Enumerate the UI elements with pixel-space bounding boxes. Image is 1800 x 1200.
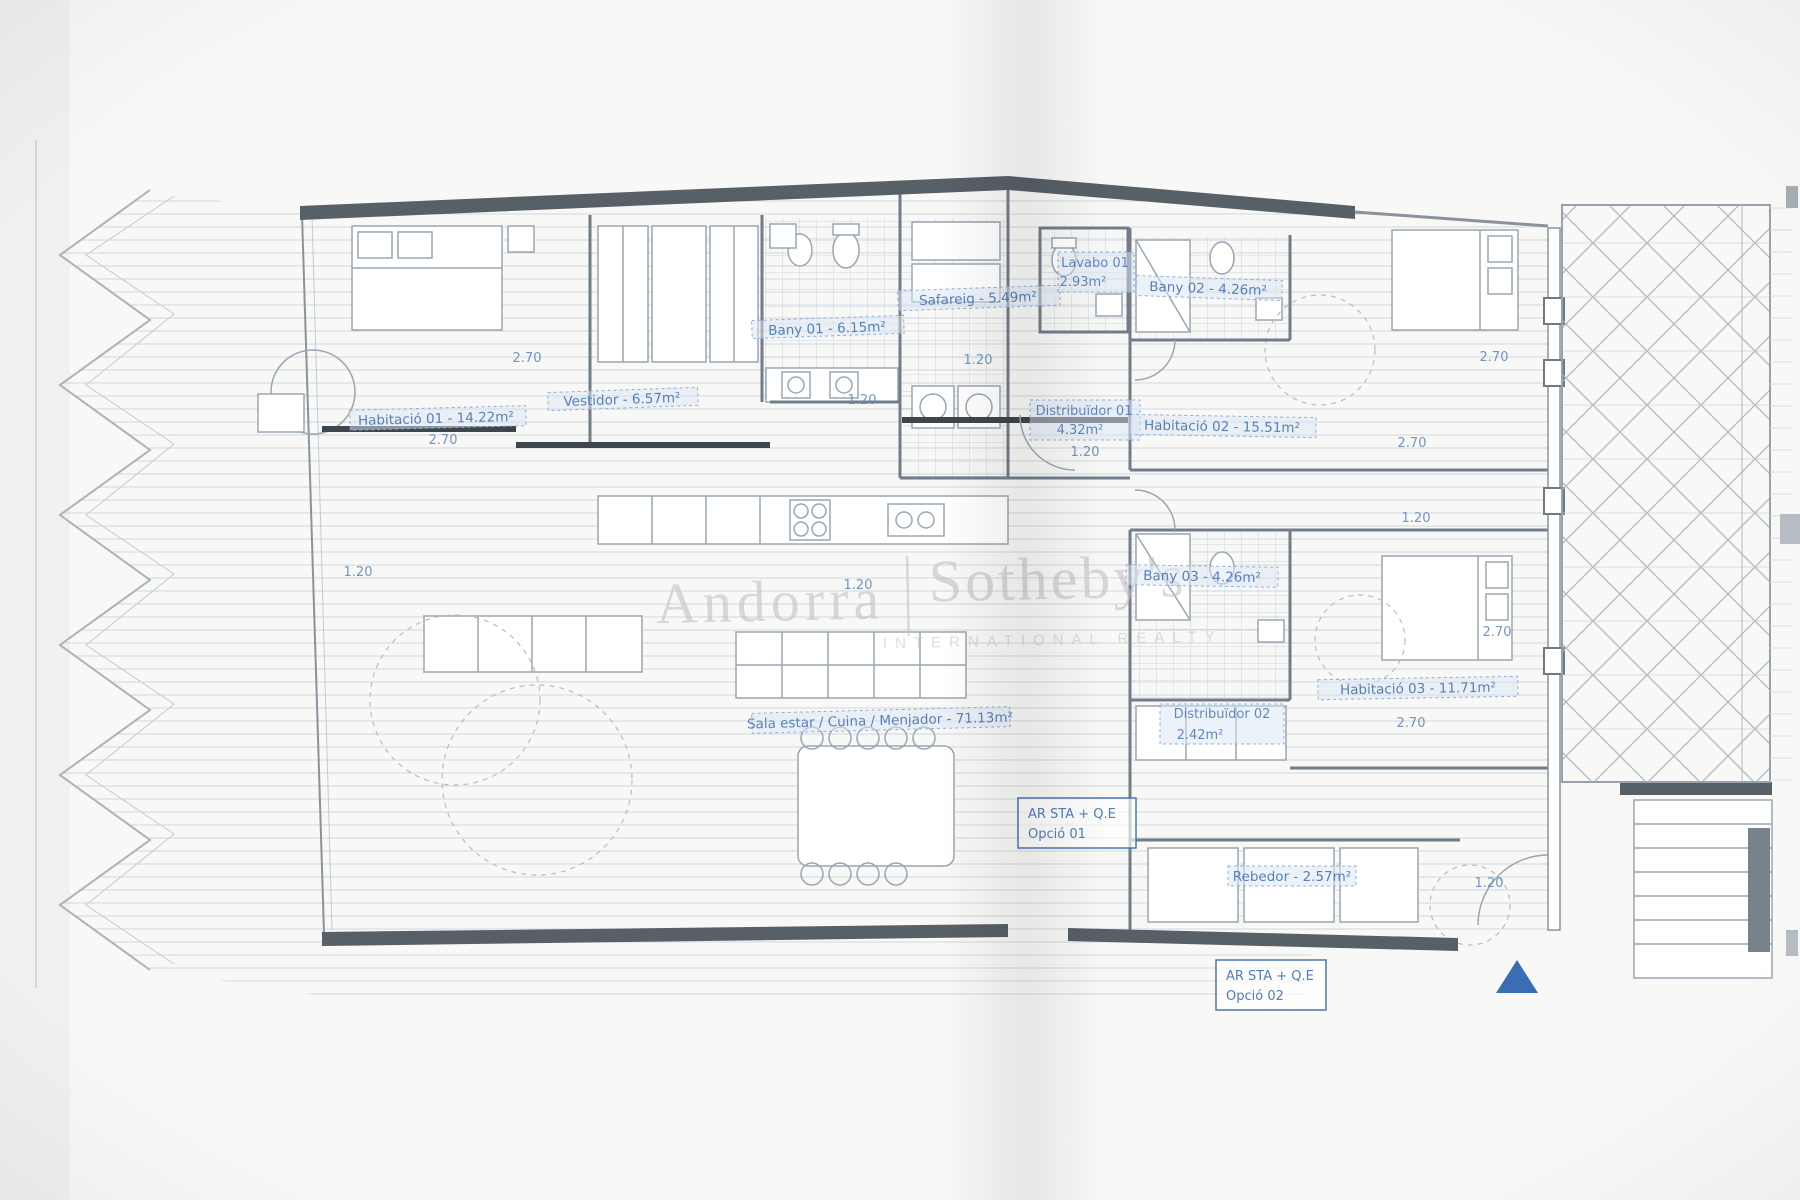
floor-plan-svg: Andorra Sotheby's INTERNATIONAL REALTY H… [0, 0, 1800, 1200]
floor-plan-scan: Andorra Sotheby's INTERNATIONAL REALTY H… [0, 0, 1800, 1200]
vignette [0, 0, 1800, 1200]
